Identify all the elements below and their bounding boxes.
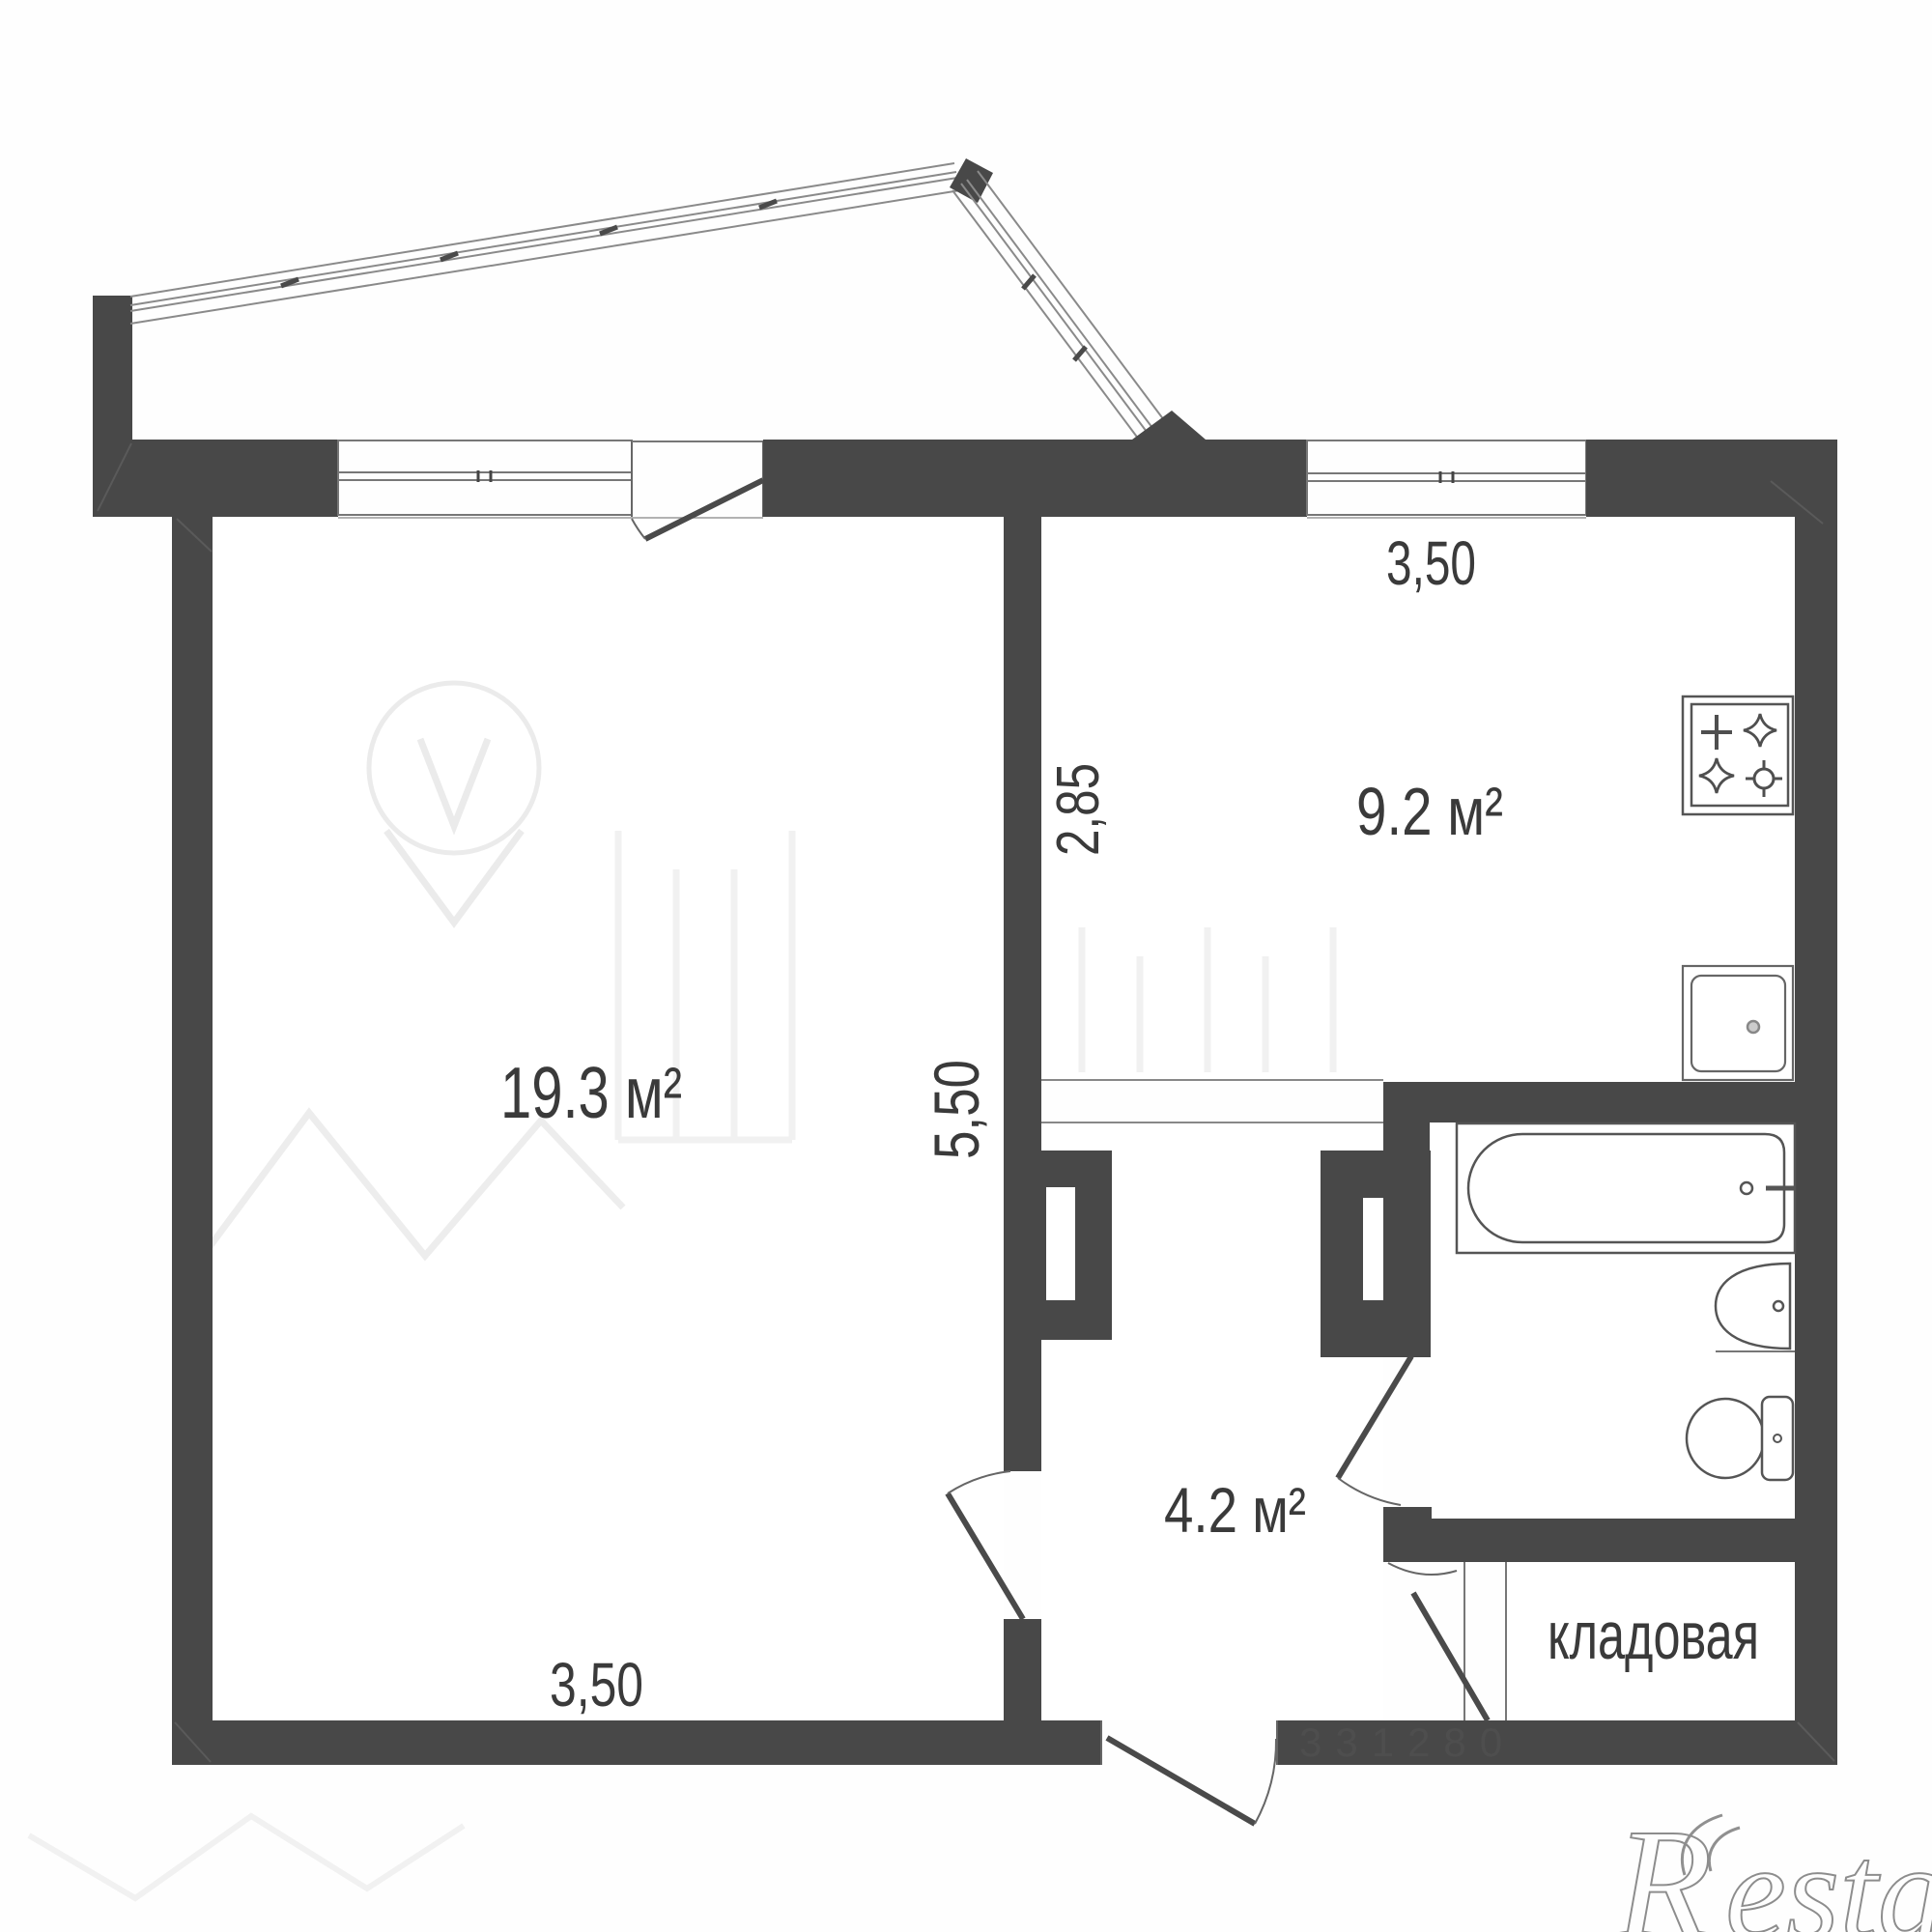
svg-text:9.2 м²: 9.2 м² [1356,774,1503,849]
svg-text:4.2 м²: 4.2 м² [1164,1474,1306,1546]
svg-text:3,50: 3,50 [1386,528,1476,598]
svg-text:19.3 м²: 19.3 м² [500,1052,682,1133]
svg-text:331280: 331280 [1299,1719,1516,1765]
svg-text:5,50: 5,50 [921,1060,992,1159]
svg-text:R: R [1614,1796,1713,1932]
svg-text:кладовая: кладовая [1548,1598,1759,1673]
svg-text:2,85: 2,85 [1045,763,1112,856]
svg-text:estate: estate [1725,1815,1932,1932]
svg-text:3,50: 3,50 [550,1650,643,1719]
